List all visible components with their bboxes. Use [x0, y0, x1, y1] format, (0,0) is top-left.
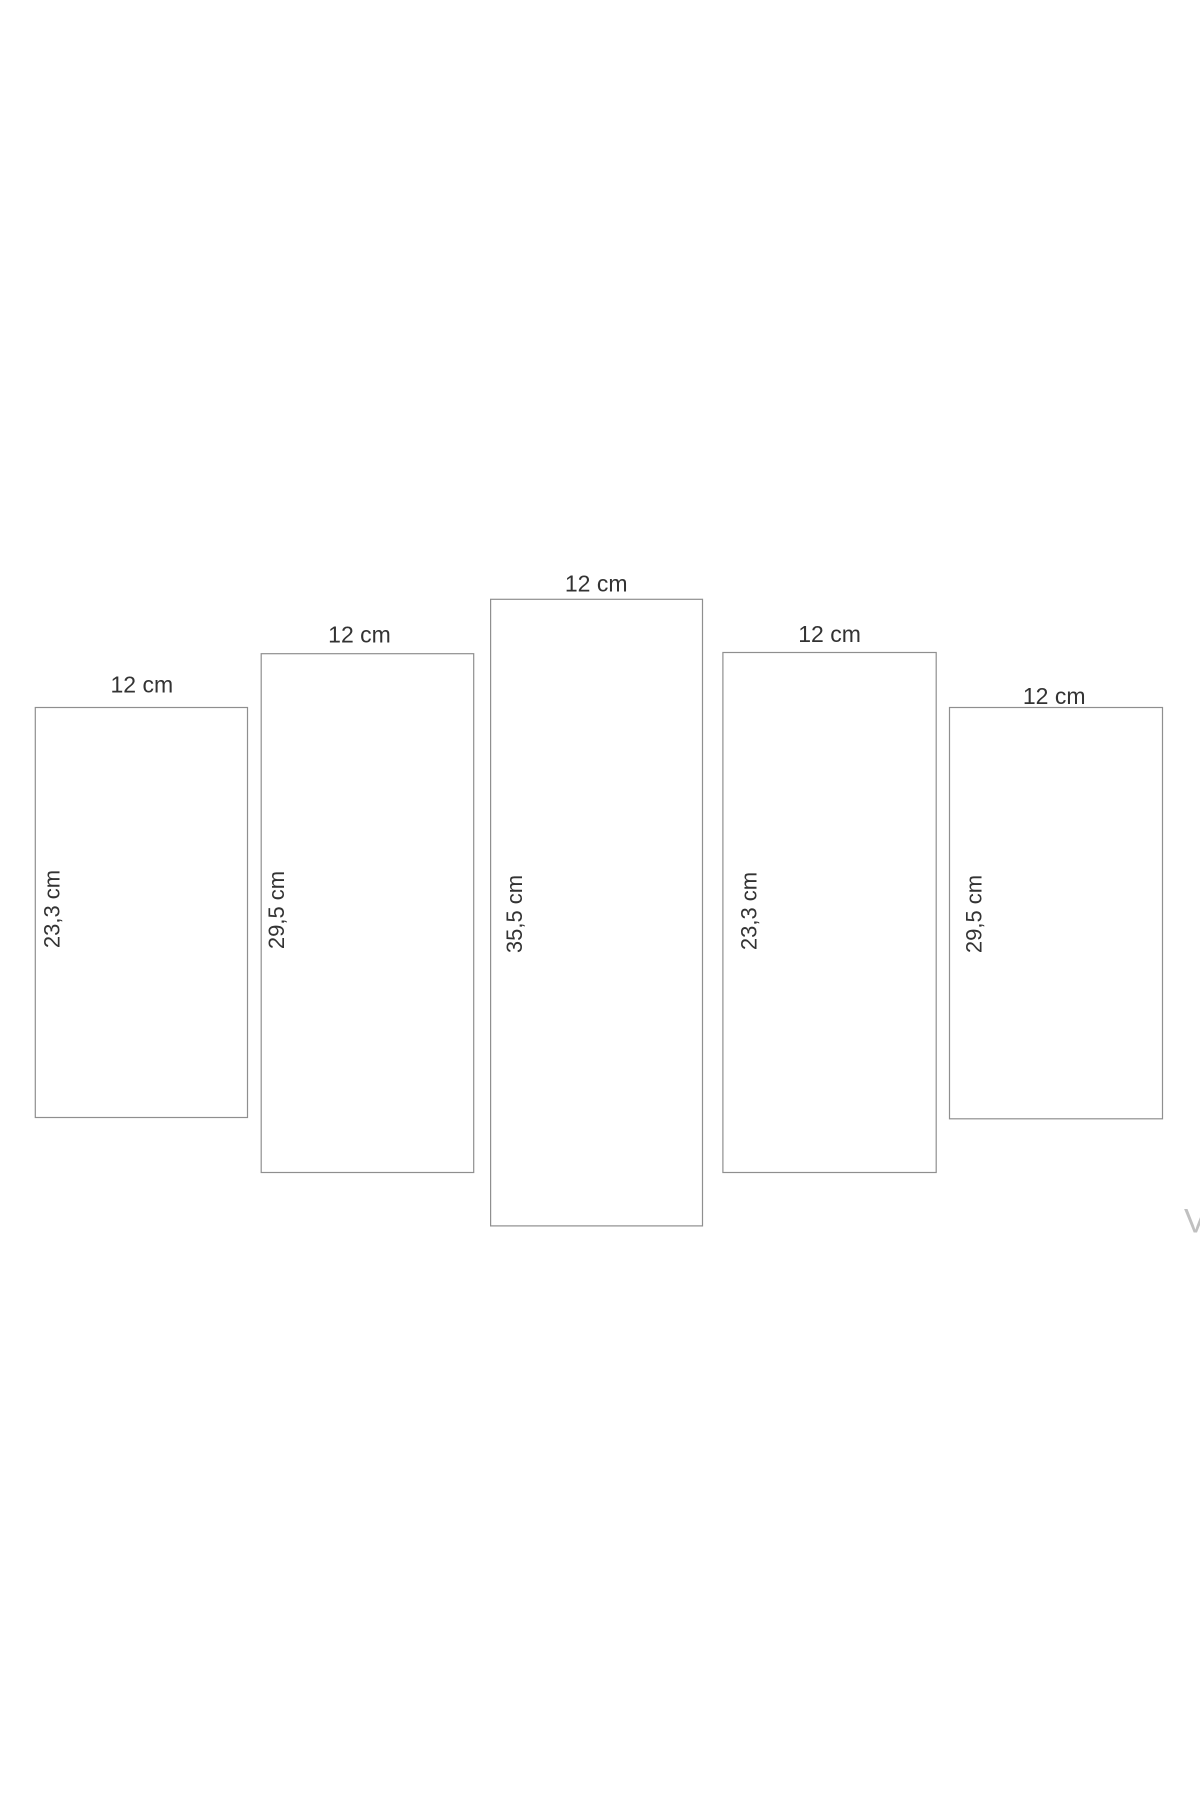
svg-text:12 cm: 12 cm	[1023, 683, 1086, 709]
svg-text:12 cm: 12 cm	[798, 621, 861, 647]
svg-text:23,3 cm: 23,3 cm	[40, 870, 65, 948]
svg-text:23,3 cm: 23,3 cm	[737, 872, 762, 950]
svg-text:29,5 cm: 29,5 cm	[962, 875, 987, 953]
svg-text:V: V	[1184, 1203, 1200, 1241]
svg-text:29,5 cm: 29,5 cm	[264, 871, 289, 949]
svg-text:12 cm: 12 cm	[565, 570, 628, 596]
svg-text:35,5 cm: 35,5 cm	[502, 875, 527, 953]
svg-text:12 cm: 12 cm	[328, 621, 391, 647]
svg-text:12 cm: 12 cm	[110, 672, 173, 698]
